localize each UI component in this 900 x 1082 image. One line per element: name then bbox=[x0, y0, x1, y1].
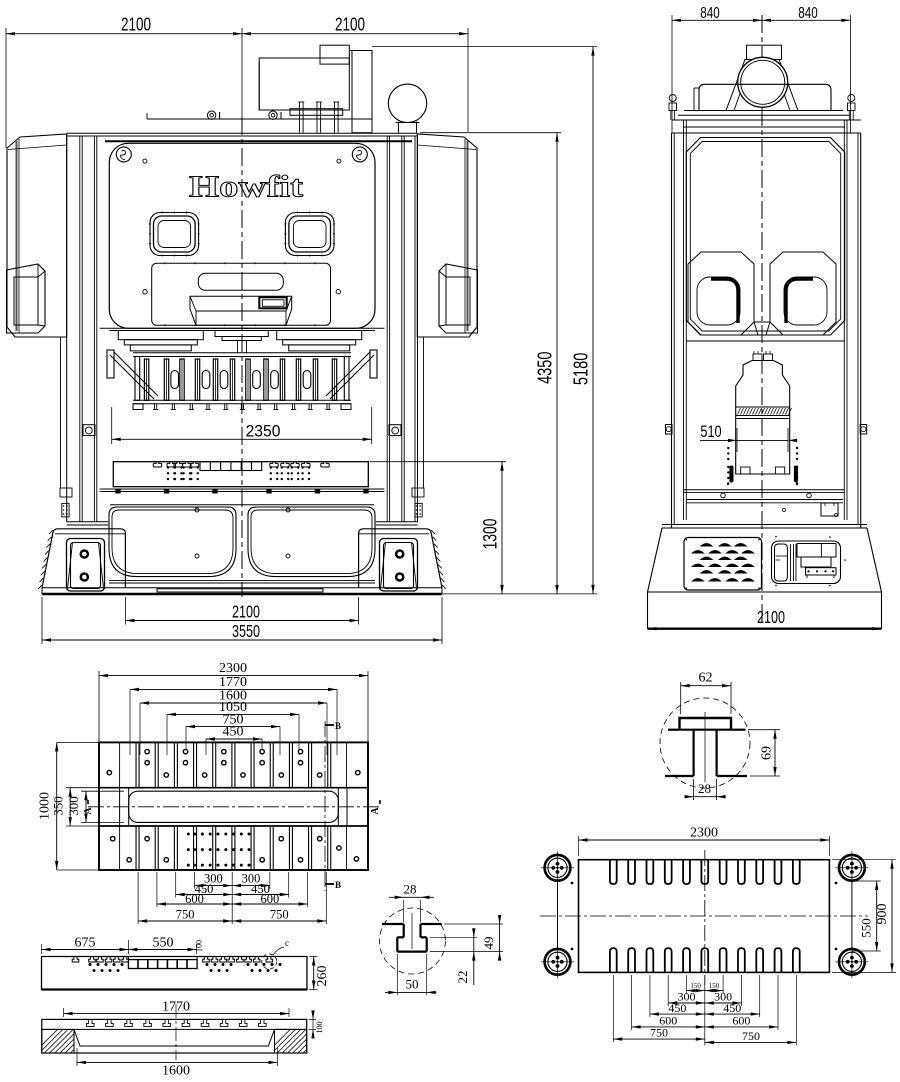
svg-text:1300: 1300 bbox=[479, 519, 501, 550]
svg-text:62: 62 bbox=[699, 671, 713, 686]
svg-text:840: 840 bbox=[798, 3, 818, 21]
svg-text:750: 750 bbox=[742, 1029, 760, 1043]
svg-text:750: 750 bbox=[650, 1026, 668, 1040]
svg-text:510: 510 bbox=[700, 422, 721, 441]
svg-text:4350: 4350 bbox=[533, 351, 556, 384]
svg-text:5180: 5180 bbox=[569, 352, 592, 385]
svg-text:750: 750 bbox=[270, 907, 289, 921]
svg-text:28: 28 bbox=[404, 882, 417, 897]
svg-text:450: 450 bbox=[223, 725, 244, 740]
svg-text:2100: 2100 bbox=[335, 15, 365, 36]
svg-text:A: A bbox=[370, 807, 381, 815]
svg-text:22: 22 bbox=[455, 971, 470, 984]
svg-text:2300: 2300 bbox=[219, 661, 247, 676]
svg-text:69: 69 bbox=[760, 746, 775, 760]
svg-text:1600: 1600 bbox=[162, 1064, 190, 1079]
svg-text:B: B bbox=[335, 880, 341, 890]
svg-text:100: 100 bbox=[315, 1022, 324, 1034]
svg-text:750: 750 bbox=[176, 907, 195, 921]
svg-text:600: 600 bbox=[260, 892, 279, 906]
svg-text:840: 840 bbox=[700, 3, 720, 21]
svg-text:260: 260 bbox=[315, 966, 330, 987]
svg-text:2300: 2300 bbox=[690, 826, 718, 841]
svg-text:300: 300 bbox=[66, 796, 81, 816]
svg-text:350: 350 bbox=[51, 796, 66, 816]
svg-text:600: 600 bbox=[732, 1014, 750, 1028]
svg-text:Howfit: Howfit bbox=[189, 169, 304, 204]
svg-text:600: 600 bbox=[185, 892, 204, 906]
svg-text:2100: 2100 bbox=[757, 608, 785, 628]
svg-text:c: c bbox=[285, 938, 289, 948]
svg-text:2100: 2100 bbox=[232, 603, 260, 623]
svg-text:50: 50 bbox=[406, 977, 419, 992]
svg-text:675: 675 bbox=[75, 936, 96, 951]
svg-text:B: B bbox=[335, 721, 341, 731]
svg-text:900: 900 bbox=[875, 904, 890, 925]
svg-text:3550: 3550 bbox=[232, 622, 260, 642]
svg-text:28: 28 bbox=[698, 781, 711, 796]
svg-text:2100: 2100 bbox=[121, 15, 151, 36]
svg-text:550: 550 bbox=[153, 936, 174, 951]
svg-text:49: 49 bbox=[481, 937, 496, 950]
svg-text:2350: 2350 bbox=[246, 422, 281, 440]
svg-text:100: 100 bbox=[195, 940, 204, 952]
svg-text:550: 550 bbox=[859, 918, 874, 938]
